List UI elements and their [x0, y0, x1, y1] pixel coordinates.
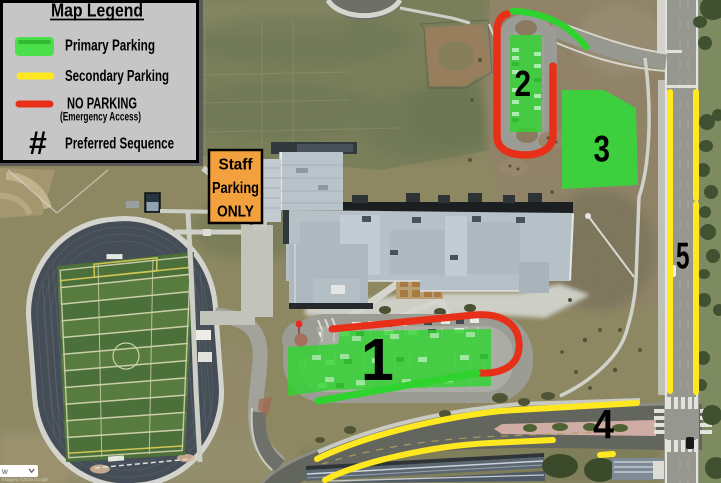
- svg-text:4: 4: [593, 401, 614, 447]
- svg-text:3: 3: [594, 129, 611, 170]
- svg-text:ONLY: ONLY: [217, 204, 254, 221]
- svg-text:2: 2: [515, 63, 532, 104]
- svg-text:w: w: [1, 467, 8, 476]
- svg-text:Map Legend: Map Legend: [51, 1, 143, 21]
- svg-text:Imagery ©2016 Google: Imagery ©2016 Google: [2, 476, 49, 482]
- svg-text:1: 1: [361, 327, 394, 393]
- svg-text:Secondary Parking: Secondary Parking: [65, 68, 169, 85]
- svg-text:(Emergency Access): (Emergency Access): [60, 110, 141, 124]
- svg-text:Preferred Sequence: Preferred Sequence: [65, 136, 174, 153]
- svg-text:5: 5: [676, 236, 690, 277]
- svg-text:Staff: Staff: [219, 157, 254, 174]
- svg-text:#: #: [29, 125, 47, 161]
- svg-text:Parking: Parking: [212, 180, 259, 197]
- svg-text:Primary Parking: Primary Parking: [65, 38, 155, 55]
